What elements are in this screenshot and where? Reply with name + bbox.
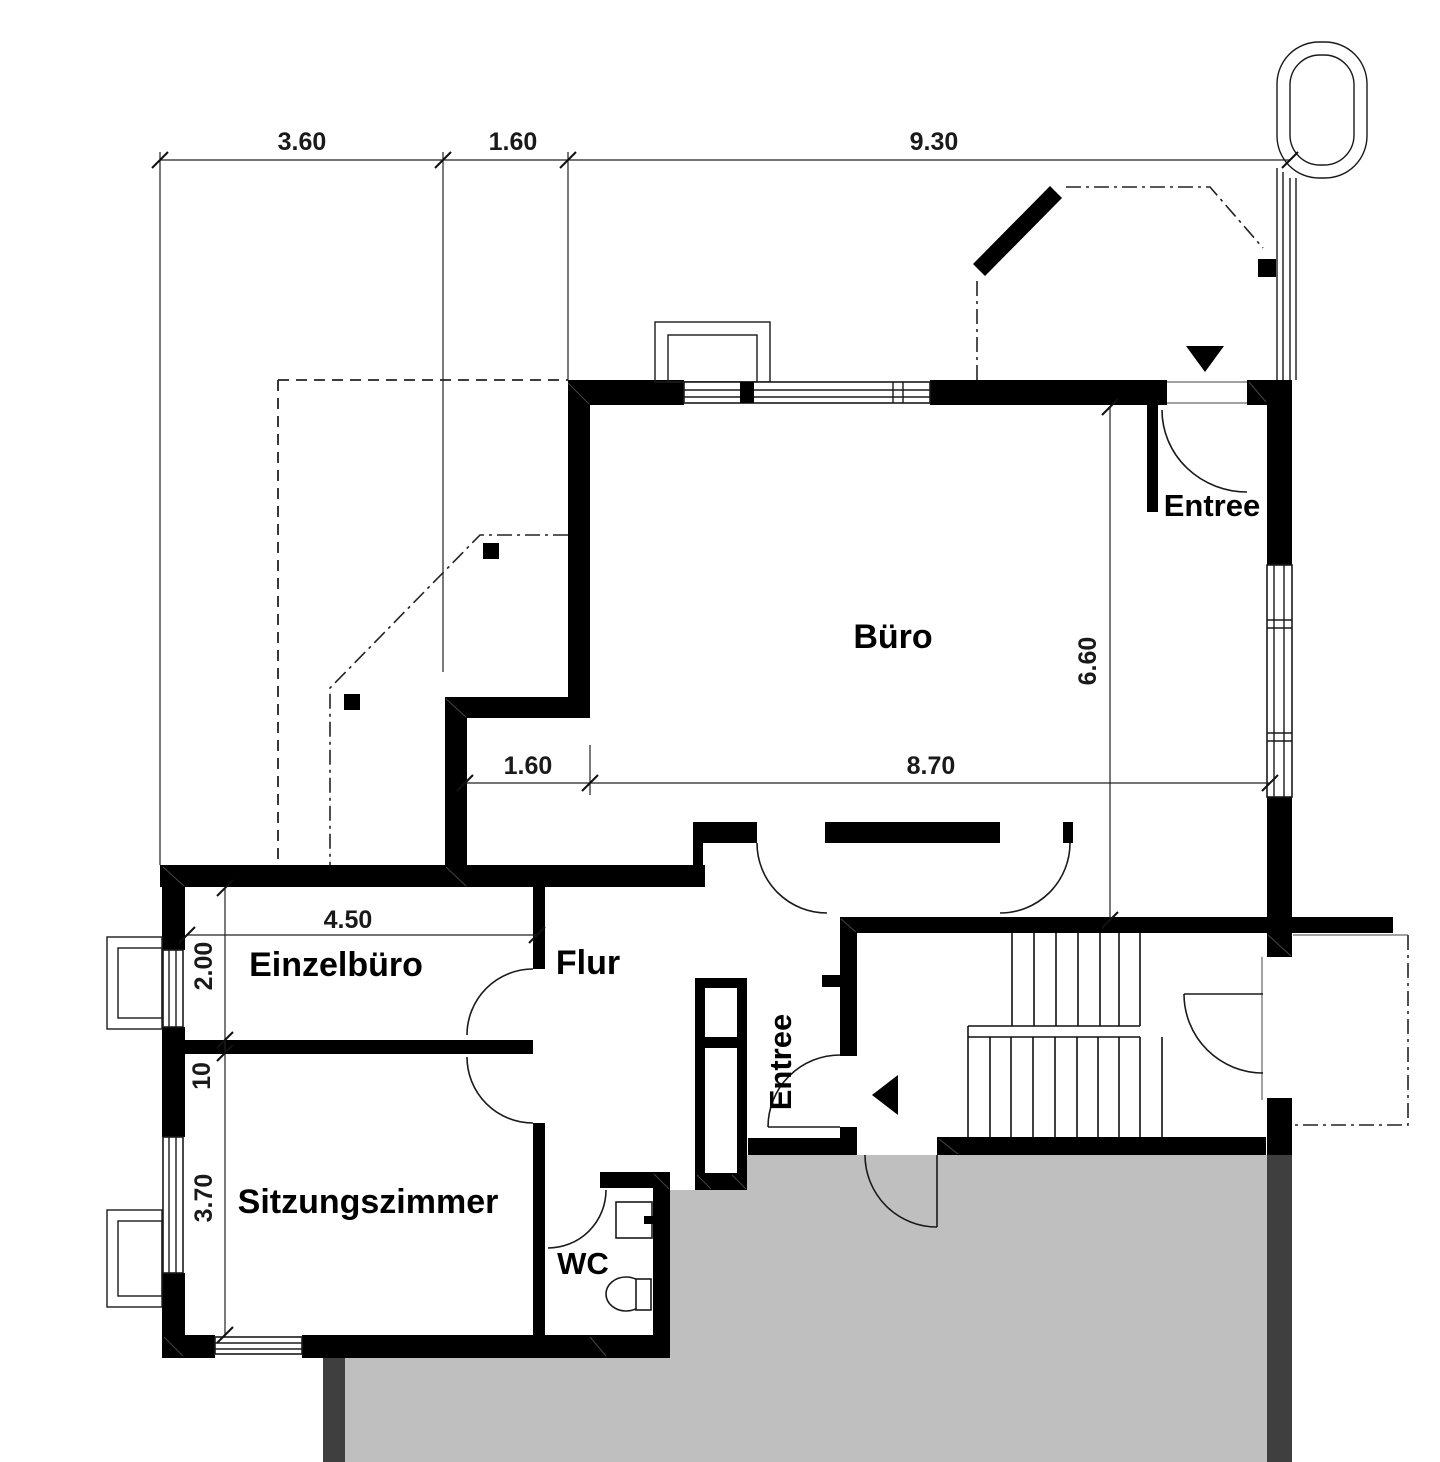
room-label-entree-bottom: Entree [763,1014,798,1110]
dim-top-left: 3.60 [278,128,327,156]
room-label-entree-top: Entree [1164,488,1260,523]
door-einzelbuero [467,969,533,1035]
roof-anchor-square-2 [344,694,360,710]
entrance-arrows [872,346,1224,1115]
floor-plan-page: 3.60 1.60 9.30 1.60 8.70 4.50 2.00 10 3.… [0,0,1440,1462]
door-stairhall-east [1184,957,1263,1100]
window-buero-north [684,382,930,403]
staircase [968,933,1162,1137]
entrance-arrow-down-icon [1186,346,1224,372]
dim-buero-height: 6.60 [1074,637,1102,686]
dim-einzelbuero-height: 2.00 [190,942,218,991]
room-label-wc: WC [557,1246,609,1281]
window-einzelbuero-west [107,937,183,1029]
door-wc [548,1190,606,1248]
door-corridor-buero [757,843,827,913]
room-label-einzelbuero: Einzelbüro [249,946,423,984]
room-label-buero: Büro [853,618,932,656]
window-sitzungszimmer-south [215,1337,302,1354]
roof-edge-bar [973,186,1062,276]
dim-top-right: 9.30 [910,128,959,156]
dim-inner-left: 1.60 [504,752,553,780]
dim-top-mid: 1.60 [489,128,538,156]
entrance-arrow-left-icon [872,1075,898,1115]
dim-wall-thickness: 10 [188,1062,216,1090]
toilet-tank [636,1279,651,1310]
roof-anchor-square-3 [1258,259,1276,277]
stair-upper-flight [1012,933,1140,1026]
roof-anchor-square-1 [483,543,499,559]
window-buero-east [1267,565,1292,797]
stair-lower-flight [968,1037,1162,1137]
dim-inner-right: 8.70 [907,752,956,780]
bay-outline-outer [655,322,770,382]
slab-edge-right [1267,1153,1292,1462]
room-label-flur: Flur [556,944,620,982]
door-sitzungszimmer [467,1057,533,1123]
sink-tap [644,1216,656,1224]
door-corridor-stairhall [1000,843,1070,913]
slab-edge-left [323,1353,345,1462]
dim-einzelbuero-width: 4.50 [324,906,373,934]
floor-plan-canvas: 3.60 1.60 9.30 1.60 8.70 4.50 2.00 10 3.… [0,0,1440,1462]
bay-outline-inner [668,335,757,382]
dim-sitzungszimmer-height: 3.70 [190,1174,218,1223]
room-label-sitzungszimmer: Sitzungszimmer [238,1183,499,1221]
door-entree-top [1162,410,1247,492]
stair-landing-rail [968,1026,1140,1037]
wc-fixtures [606,1202,656,1311]
exterior-loop [1277,42,1367,380]
